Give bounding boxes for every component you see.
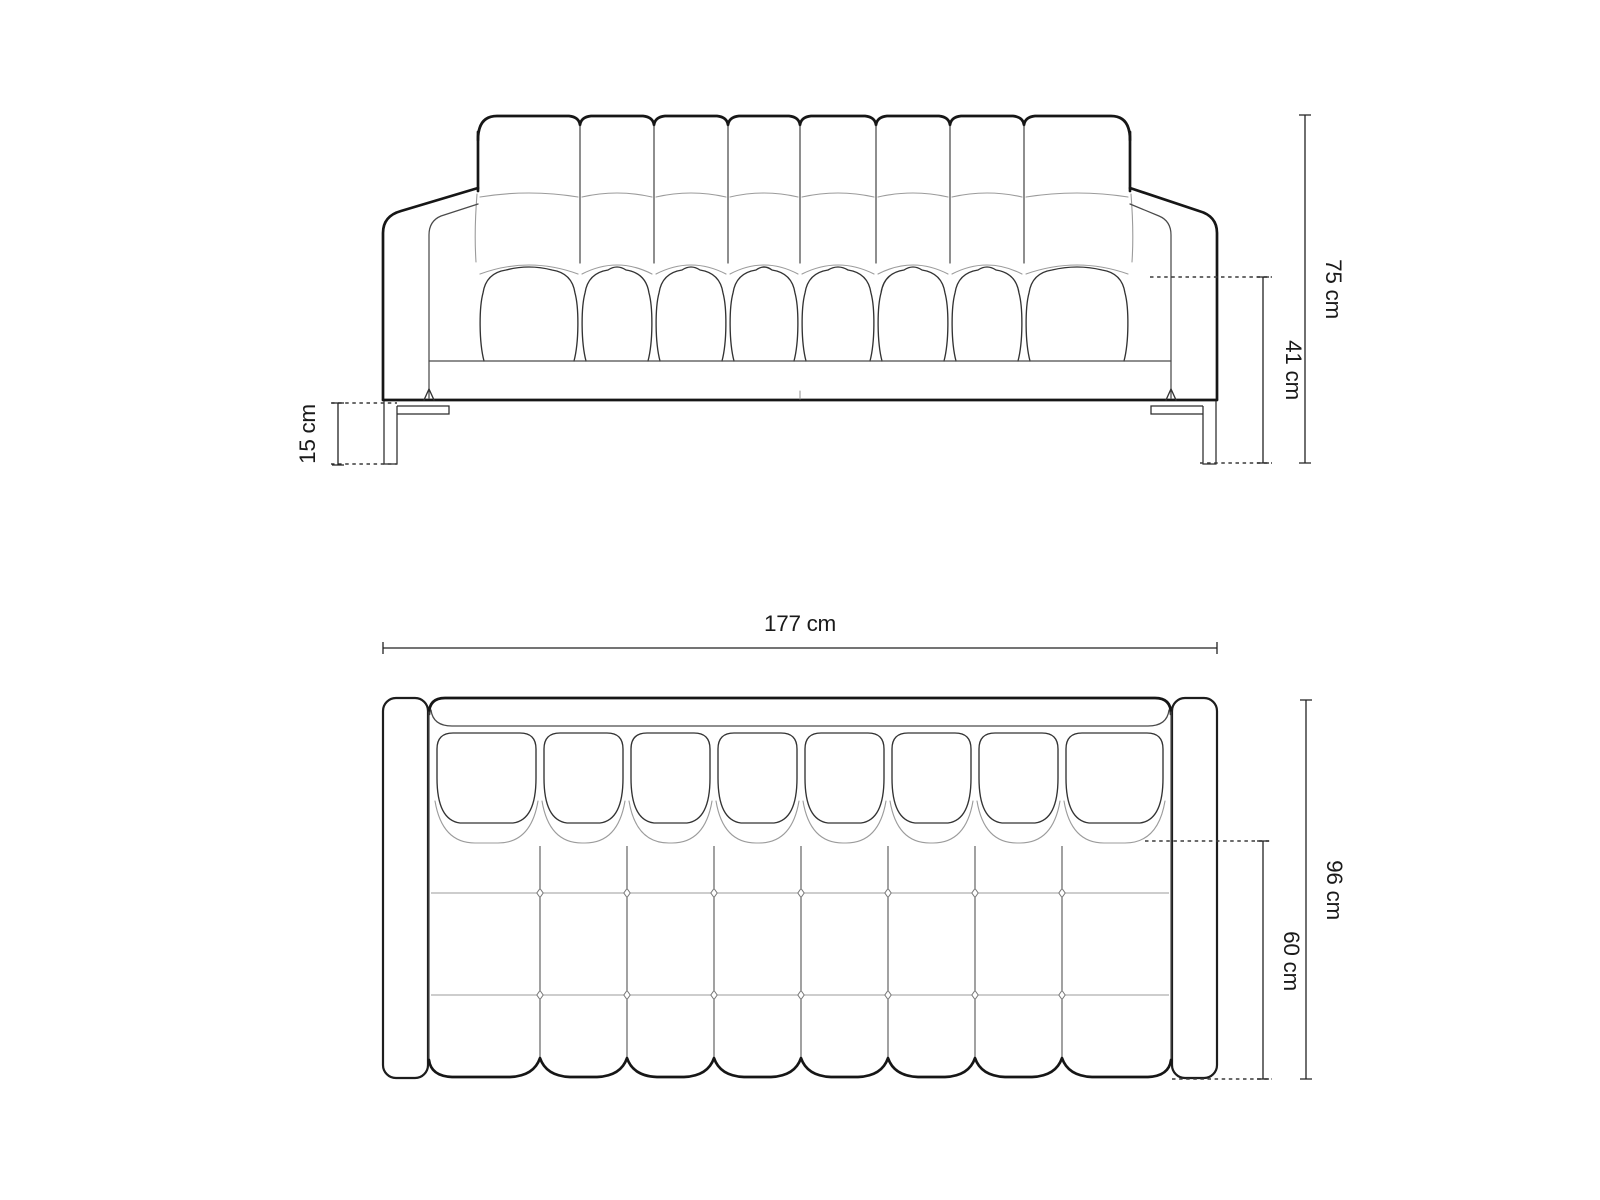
- top-grid-notch: [972, 889, 978, 898]
- right-armrest-inner: [1130, 204, 1171, 398]
- top-back-cushion: [892, 733, 971, 823]
- top-grid-notch: [798, 991, 804, 1000]
- backrest-top-edge-path: [478, 116, 1130, 140]
- top-grid-notch: [885, 991, 891, 1000]
- top-view: [383, 698, 1217, 1078]
- backrest-mid-seam-arc: [878, 193, 948, 197]
- seat-cushion-front: [1026, 267, 1128, 361]
- top-grid-notch: [885, 889, 891, 898]
- seat-cushion-front: [480, 267, 578, 361]
- dim-leg-height-label: 15 cm: [295, 404, 320, 464]
- top-back-cushion-folds: [435, 801, 1165, 843]
- top-back-cushion: [631, 733, 710, 823]
- backrest-mid-seam-arc: [730, 193, 798, 197]
- backrest-mid-seam-arc: [582, 193, 652, 197]
- top-grid-notch: [537, 889, 543, 898]
- top-back-rail-seam: [431, 710, 1169, 726]
- dim-leg-height: 15 cm: [295, 403, 397, 465]
- right-leg: [1151, 401, 1216, 464]
- right-armrest-outer: [1130, 188, 1217, 399]
- top-back-cushion-fold: [716, 801, 799, 843]
- diagram-canvas: 75 cm 41 cm 15 cm 177 cm: [0, 0, 1600, 1200]
- sofa-dimension-diagram: 75 cm 41 cm 15 cm 177 cm: [0, 0, 1600, 1200]
- top-grid-notch: [624, 991, 630, 1000]
- top-grid-notch: [1059, 991, 1065, 1000]
- seat-cushion-front: [802, 267, 874, 361]
- top-back-cushion-fold: [435, 801, 538, 843]
- top-back-cushion: [544, 733, 623, 823]
- top-back-cushion: [1066, 733, 1163, 823]
- top-right-armrest: [1172, 698, 1217, 1078]
- top-seat-grid: [431, 846, 1169, 1060]
- backrest-mid-seam: [480, 193, 1128, 197]
- top-grid-notch: [711, 889, 717, 898]
- top-back-cushion-fold: [890, 801, 973, 843]
- top-grid-notch: [537, 991, 543, 1000]
- top-back-cushion: [718, 733, 797, 823]
- backrest-mid-seam-arc: [480, 193, 578, 197]
- dim-width-label: 177 cm: [764, 611, 836, 636]
- backrest-top-edge: [478, 116, 1130, 140]
- seat-cushion-front: [878, 267, 948, 361]
- left-armrest-outer: [383, 188, 478, 399]
- top-body-top-edge: [429, 698, 1171, 714]
- top-back-cushion-fold: [542, 801, 625, 843]
- top-dimensions: 177 cm 96 cm 60 cm: [383, 611, 1347, 1079]
- top-back-cushion: [437, 733, 536, 823]
- top-grid-notch: [972, 991, 978, 1000]
- seat-cushion-front: [582, 267, 652, 361]
- backrest-dividers: [580, 126, 1024, 263]
- backrest-mid-seam-arc: [656, 193, 726, 197]
- dim-seat-depth: 60 cm: [1145, 841, 1304, 1079]
- dim-depth-label: 96 cm: [1322, 860, 1347, 920]
- dim-total-height: 75 cm: [1299, 115, 1346, 463]
- backrest-mid-seam-arc: [1026, 193, 1128, 197]
- top-back-cushion-fold: [803, 801, 886, 843]
- backrest-mid-seam-arc: [952, 193, 1022, 197]
- dim-seat-height: 41 cm: [1150, 277, 1306, 463]
- top-grid-notch: [624, 889, 630, 898]
- seat-cushion-front: [952, 267, 1022, 361]
- top-back-cushion: [979, 733, 1058, 823]
- dim-seat-height-label: 41 cm: [1281, 340, 1306, 400]
- top-left-armrest: [383, 698, 428, 1078]
- top-front-edge: [429, 1058, 1171, 1077]
- top-back-cushions: [437, 733, 1163, 823]
- seat-cushions-front: [480, 267, 1128, 361]
- seat-cushion-front: [656, 267, 726, 361]
- top-grid-notch: [1059, 889, 1065, 898]
- front-dimensions: 75 cm 41 cm 15 cm: [295, 115, 1346, 465]
- top-grid-notch: [798, 889, 804, 898]
- backrest-lower-tufts: [480, 265, 1128, 274]
- top-back-cushion-fold: [1064, 801, 1165, 843]
- top-back-cushion: [805, 733, 884, 823]
- top-grid-notch: [711, 991, 717, 1000]
- left-leg: [384, 401, 449, 464]
- dim-total-height-label: 75 cm: [1321, 259, 1346, 319]
- top-back-cushion-fold: [977, 801, 1060, 843]
- top-back-cushion-fold: [629, 801, 712, 843]
- backrest-mid-seam-arc: [802, 193, 874, 197]
- front-view: [383, 116, 1217, 464]
- left-armrest-inner: [429, 204, 478, 398]
- top-front-edge-path: [429, 1058, 1171, 1077]
- dim-width: 177 cm: [383, 611, 1217, 654]
- dim-depth: 96 cm: [1300, 700, 1347, 1079]
- seat-cushion-front: [730, 267, 798, 361]
- dim-seat-depth-label: 60 cm: [1279, 931, 1304, 991]
